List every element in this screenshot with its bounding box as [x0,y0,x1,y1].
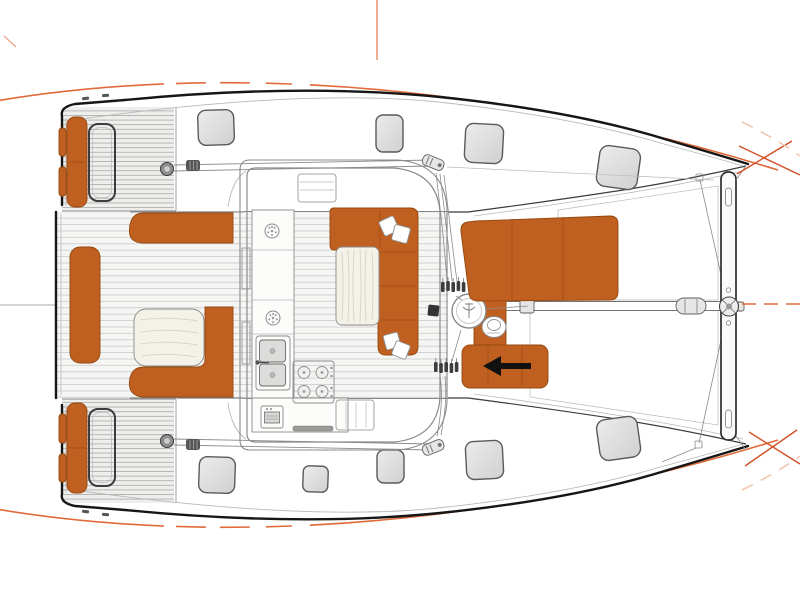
cockpit-table [134,309,204,366]
bowsprit-cylinder [676,298,706,314]
kick-plate [293,426,333,431]
deck-hatch [595,144,641,190]
deck-plan-canvas [0,0,800,600]
forward-bench [462,345,548,388]
deck-hatch [465,440,504,480]
scatter-cushion [391,224,411,244]
aft-center-sunpad [70,247,100,363]
cockpit-bench-starboard [129,213,233,243]
mast-step-cleat [427,305,439,317]
deck-hatch [595,415,641,461]
deck-plan-page [0,0,800,600]
deck-hatch [377,450,404,483]
deck-hatch [464,123,504,164]
deck-hatch [197,109,234,145]
deck-hatch [198,456,235,493]
deck-hatch [303,466,329,493]
sunbed [461,216,618,301]
deck-hatch [376,115,403,152]
